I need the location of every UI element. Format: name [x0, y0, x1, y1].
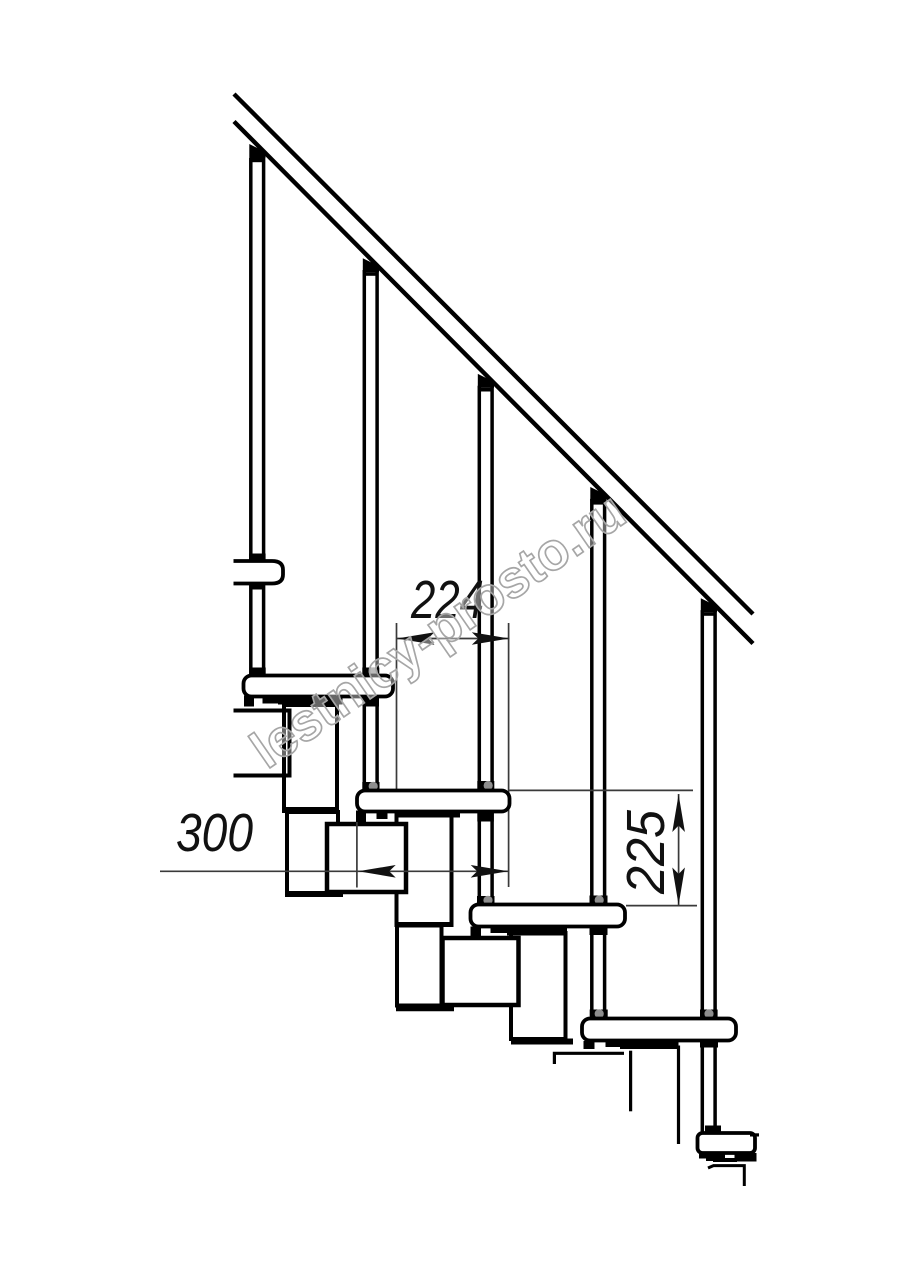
svg-text:300: 300: [176, 803, 253, 863]
svg-text:225: 225: [616, 809, 676, 895]
